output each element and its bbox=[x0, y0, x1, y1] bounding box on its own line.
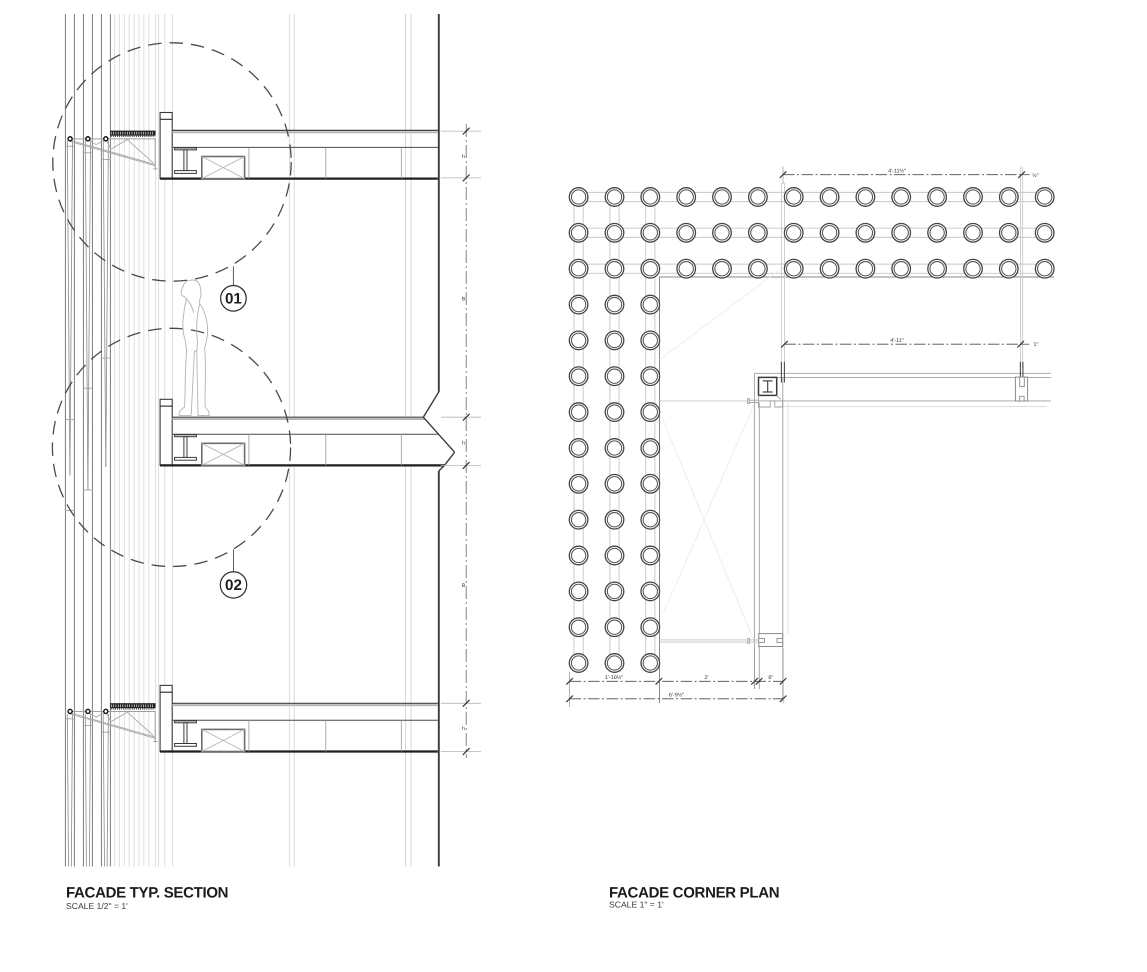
svg-text:FACADE TYP. SECTION: FACADE TYP. SECTION bbox=[66, 885, 228, 902]
svg-text:SCALE 1/2" = 1': SCALE 1/2" = 1' bbox=[66, 901, 128, 911]
svg-text:SCALE 1" = 1': SCALE 1" = 1' bbox=[609, 900, 664, 910]
svg-text:6": 6" bbox=[768, 675, 773, 681]
svg-text:h: h bbox=[462, 726, 465, 732]
svg-text:4'-11": 4'-11" bbox=[890, 338, 903, 344]
svg-text:2': 2' bbox=[704, 675, 708, 681]
svg-text:h: h bbox=[462, 154, 465, 160]
svg-text:6'-9½": 6'-9½" bbox=[669, 693, 684, 699]
svg-text:4'-11½": 4'-11½" bbox=[888, 169, 906, 175]
svg-text:01: 01 bbox=[225, 291, 242, 308]
svg-text:1": 1" bbox=[1034, 342, 1039, 348]
svg-text:B: B bbox=[462, 583, 466, 589]
svg-text:h: h bbox=[462, 441, 465, 447]
svg-text:B: B bbox=[462, 297, 466, 303]
svg-text:½": ½" bbox=[1032, 173, 1038, 179]
svg-text:02: 02 bbox=[225, 577, 242, 594]
svg-text:1'-10½": 1'-10½" bbox=[605, 675, 623, 681]
